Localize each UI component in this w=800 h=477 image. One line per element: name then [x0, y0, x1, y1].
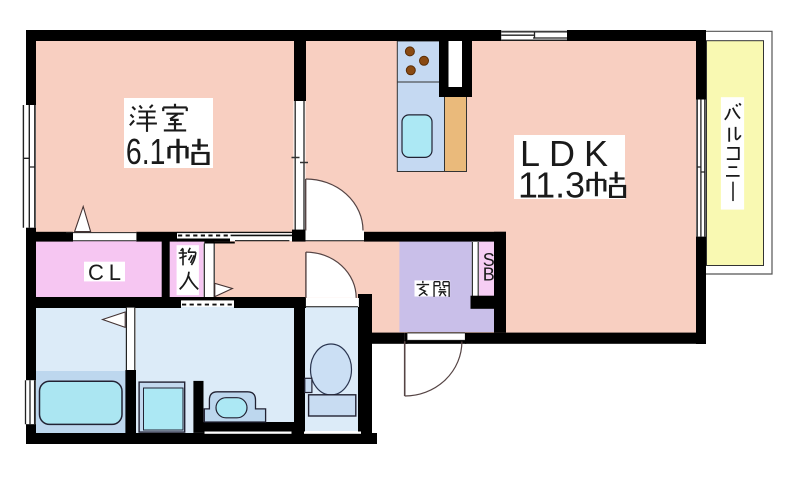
svg-text:6.1: 6.1	[126, 131, 165, 172]
svg-text:B: B	[483, 265, 495, 285]
svg-text:11.3: 11.3	[518, 165, 585, 206]
